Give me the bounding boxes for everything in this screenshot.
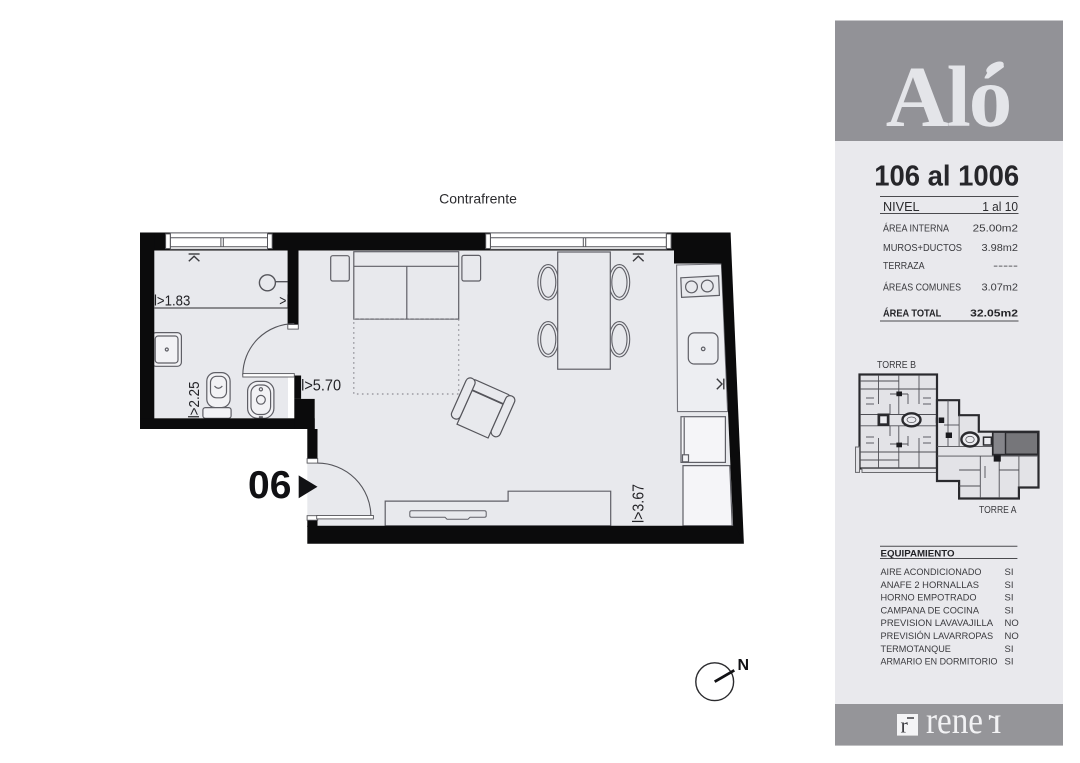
svg-text:r: r	[988, 700, 1001, 742]
svg-text:l>5.70: l>5.70	[301, 378, 341, 395]
svg-text:SI: SI	[1005, 644, 1014, 655]
svg-text:ANAFE 2 HORNALLAS: ANAFE 2 HORNALLAS	[881, 580, 980, 591]
svg-text:NIVEL: NIVEL	[883, 199, 920, 214]
svg-text:TERMOTANQUE: TERMOTANQUE	[881, 644, 951, 655]
svg-text:ÁREA TOTAL: ÁREA TOTAL	[883, 306, 941, 319]
svg-text:rene: rene	[926, 700, 983, 742]
svg-text:NO: NO	[1005, 618, 1019, 629]
svg-text:SI: SI	[1005, 605, 1014, 616]
svg-text:MUROS+DUCTOS: MUROS+DUCTOS	[883, 243, 962, 254]
svg-text:1 al 10: 1 al 10	[982, 199, 1018, 214]
svg-text:25.00m2: 25.00m2	[973, 223, 1019, 234]
svg-text:TERRAZA: TERRAZA	[883, 261, 925, 272]
svg-text:HORNO EMPOTRADO: HORNO EMPOTRADO	[881, 593, 977, 604]
svg-text:NO: NO	[1005, 631, 1019, 642]
svg-text:SI: SI	[1005, 580, 1014, 591]
svg-text:3.98m2: 3.98m2	[982, 243, 1019, 254]
svg-text:-----: -----	[993, 261, 1018, 272]
svg-text:SI: SI	[1005, 567, 1014, 578]
svg-text:TORRE A: TORRE A	[979, 505, 1017, 516]
svg-text:PREVISIÓN LAVARROPAS: PREVISIÓN LAVARROPAS	[881, 631, 994, 642]
svg-text:TORRE B: TORRE B	[877, 360, 916, 371]
svg-text:06: 06	[248, 464, 291, 507]
svg-text:PREVISION LAVAVAJILLA: PREVISION LAVAVAJILLA	[881, 618, 994, 629]
svg-text:ARMARIO EN DORMITORIO: ARMARIO EN DORMITORIO	[881, 657, 998, 668]
svg-text:SI: SI	[1005, 593, 1014, 604]
svg-text:SI: SI	[1005, 657, 1014, 668]
svg-text:Aló: Aló	[886, 48, 1011, 145]
svg-text:l>3.67: l>3.67	[631, 484, 648, 523]
svg-text:106 al 1006: 106 al 1006	[874, 161, 1019, 193]
svg-text:EQUIPAMIENTO: EQUIPAMIENTO	[881, 549, 955, 560]
svg-text:CAMPANA DE COCINA: CAMPANA DE COCINA	[881, 605, 980, 616]
svg-text:l>1.83: l>1.83	[154, 294, 190, 310]
svg-text:Contrafrente: Contrafrente	[439, 191, 517, 207]
svg-text:r: r	[901, 713, 909, 738]
svg-text:AIRE ACONDICIONADO: AIRE ACONDICIONADO	[881, 567, 982, 578]
svg-text:ÁREA INTERNA: ÁREA INTERNA	[883, 221, 949, 234]
svg-text:3.07m2: 3.07m2	[982, 282, 1019, 293]
svg-text:N: N	[738, 657, 750, 674]
svg-text:32.05m2: 32.05m2	[970, 308, 1018, 319]
svg-text:l>2.25: l>2.25	[187, 381, 203, 418]
svg-text:ÁREAS COMUNES: ÁREAS COMUNES	[883, 280, 961, 293]
